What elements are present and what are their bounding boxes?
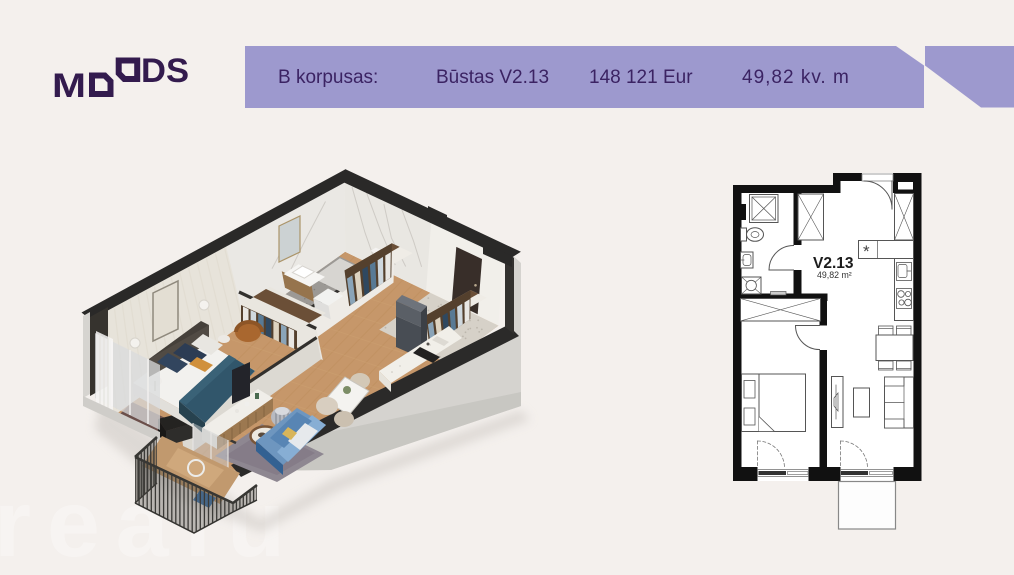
svg-text:148 121 Eur: 148 121 Eur [589,67,693,88]
svg-text:49,82 kv. m: 49,82 kv. m [742,67,850,88]
svg-text:M: M [52,67,86,105]
svg-text:Būstas V2.13: Būstas V2.13 [436,67,549,88]
svg-text:DS: DS [141,52,189,90]
svg-text:B korpusas:: B korpusas: [278,67,378,88]
svg-text:49,82 m²: 49,82 m² [817,270,852,280]
svg-text:*: * [863,242,870,261]
